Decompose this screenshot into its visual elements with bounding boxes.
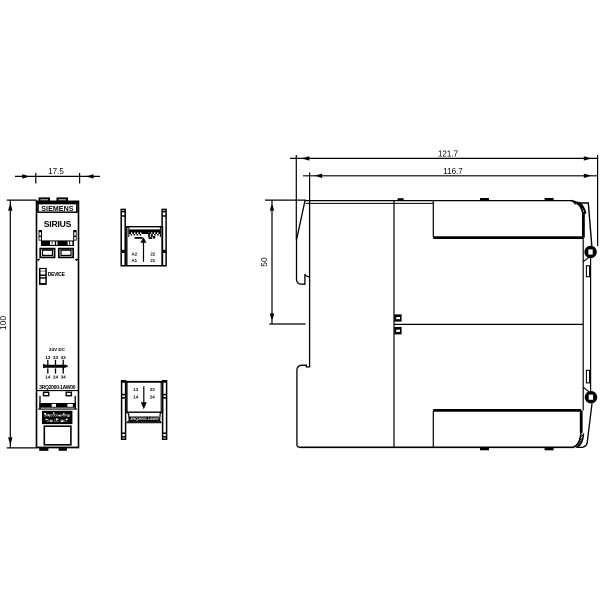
svg-text:24: 24 — [150, 395, 155, 400]
svg-text:13: 13 — [45, 355, 51, 360]
svg-text:SIEMENS: SIEMENS — [41, 206, 73, 213]
svg-text:A2: A2 — [131, 252, 137, 257]
svg-text:17.5: 17.5 — [48, 167, 64, 176]
svg-text:DEVICE: DEVICE — [48, 272, 66, 278]
svg-text:3RQ2000 1AW00: 3RQ2000 1AW00 — [44, 414, 71, 418]
svg-text:100: 100 — [0, 316, 8, 330]
svg-text:A1: A1 — [131, 258, 137, 263]
svg-text:121.7: 121.7 — [438, 150, 459, 159]
svg-text:24: 24 — [53, 374, 59, 379]
svg-text:116.7: 116.7 — [443, 167, 463, 176]
svg-text:50: 50 — [259, 257, 269, 267]
svg-text:14: 14 — [45, 374, 51, 379]
svg-text:14: 14 — [133, 395, 138, 400]
svg-text:SIRIUS: SIRIUS — [44, 219, 72, 229]
svg-text:3RQ2000-1AW00: 3RQ2000-1AW00 — [39, 385, 76, 391]
svg-text:21: 21 — [150, 258, 155, 263]
svg-text:22: 22 — [150, 252, 155, 257]
svg-text:13: 13 — [133, 387, 138, 392]
svg-text:34: 34 — [61, 374, 67, 379]
svg-text:24V DC 3NO: 24V DC 3NO — [47, 419, 67, 423]
svg-text:23: 23 — [150, 387, 155, 392]
svg-text:33: 33 — [61, 355, 67, 360]
svg-text:24: 24 — [148, 232, 153, 237]
svg-text:23: 23 — [53, 355, 59, 360]
svg-text:24V DC: 24V DC — [49, 347, 66, 352]
svg-text:3RQ2000-1AW0: 3RQ2000-1AW0 — [130, 417, 158, 421]
